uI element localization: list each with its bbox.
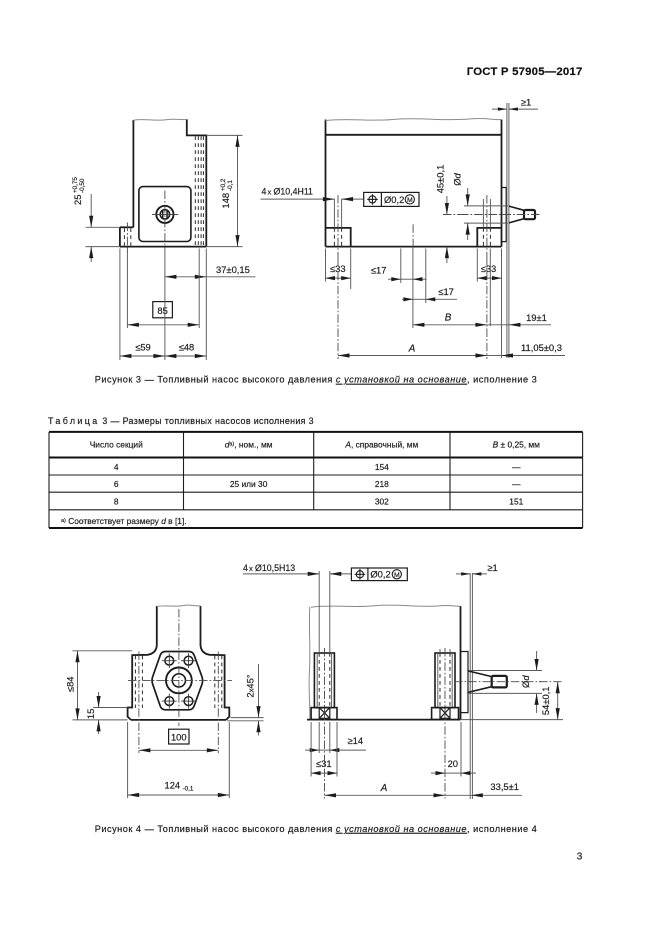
svg-text:218: 218 xyxy=(375,479,389,489)
svg-text:Таблица 3 — Размеры топливных: Таблица 3 — Размеры топливных насосов ис… xyxy=(48,416,314,426)
svg-text:154: 154 xyxy=(375,462,389,472)
svg-text:Рисунок 3 — Топливный насос вы: Рисунок 3 — Топливный насос высокого дав… xyxy=(95,375,538,385)
svg-text:302: 302 xyxy=(375,497,389,507)
svg-text:+0,2: +0,2 xyxy=(220,178,227,191)
svg-text:85: 85 xyxy=(157,305,167,316)
svg-text:А: А xyxy=(408,344,416,355)
svg-text:19±1: 19±1 xyxy=(526,312,547,323)
svg-text:В ± 0,25, мм: В ± 0,25, мм xyxy=(493,440,541,450)
svg-text:148: 148 xyxy=(220,193,231,209)
svg-text:≥14: ≥14 xyxy=(348,735,364,746)
svg-text:—: — xyxy=(512,462,521,472)
svg-text:20: 20 xyxy=(448,758,458,769)
svg-text:45±0,1: 45±0,1 xyxy=(434,165,445,194)
svg-text:15: 15 xyxy=(85,709,96,719)
svg-text:6: 6 xyxy=(114,479,119,489)
svg-text:37±0,15: 37±0,15 xyxy=(216,264,250,275)
svg-text:В: В xyxy=(445,313,452,324)
svg-text:151: 151 xyxy=(509,497,523,507)
svg-text:Рисунок 4 — Топливный насос вы: Рисунок 4 — Топливный насос высокого дав… xyxy=(95,824,538,834)
svg-text:4: 4 xyxy=(243,563,248,573)
svg-text:а) Соответствует размеру d в [: а) Соответствует размеру d в [1]. xyxy=(61,516,187,526)
svg-text:2x45°: 2x45° xyxy=(245,674,256,697)
svg-text:4: 4 xyxy=(114,462,119,472)
svg-text:100: 100 xyxy=(171,731,187,742)
svg-text:11,05±0,3: 11,05±0,3 xyxy=(521,342,562,353)
svg-text:124: 124 xyxy=(165,779,181,790)
svg-text:≤84: ≤84 xyxy=(65,677,76,693)
svg-text:33,5±1: 33,5±1 xyxy=(490,781,519,792)
svg-text:≤48: ≤48 xyxy=(179,341,195,352)
svg-text:≤33: ≤33 xyxy=(481,263,497,274)
svg-text:≤17: ≤17 xyxy=(438,286,454,297)
svg-text:≤31: ≤31 xyxy=(316,758,332,769)
svg-text:dа), ном., мм: dа), ном., мм xyxy=(225,440,273,450)
svg-text:Ø10,4H11: Ø10,4H11 xyxy=(274,187,314,197)
svg-text:M: M xyxy=(394,572,400,579)
svg-text:≤59: ≤59 xyxy=(135,341,151,352)
svg-text:Число секций: Число секций xyxy=(90,440,143,450)
svg-text:x: x xyxy=(268,188,272,197)
svg-text:x: x xyxy=(249,564,253,573)
svg-text:Ø0,2: Ø0,2 xyxy=(384,194,404,205)
svg-text:А, справочный, мм: А, справочный, мм xyxy=(344,440,418,450)
svg-text:А: А xyxy=(380,783,388,794)
svg-text:25 или 30: 25 или 30 xyxy=(230,479,268,489)
svg-text:25: 25 xyxy=(72,195,83,205)
svg-text:M: M xyxy=(407,197,413,204)
svg-text:3: 3 xyxy=(577,852,583,863)
svg-text:-0,1: -0,1 xyxy=(227,180,234,191)
svg-text:+0,75: +0,75 xyxy=(72,177,79,193)
svg-text:≥1: ≥1 xyxy=(487,562,497,573)
svg-text:—: — xyxy=(512,479,521,489)
svg-text:≥1: ≥1 xyxy=(521,97,531,108)
svg-text:-0,1: -0,1 xyxy=(183,786,194,793)
svg-text:-0,50: -0,50 xyxy=(79,178,86,193)
svg-text:4: 4 xyxy=(262,187,267,197)
svg-text:Ø0,2: Ø0,2 xyxy=(370,569,390,580)
svg-text:Ød: Ød xyxy=(451,172,462,185)
svg-text:Ød: Ød xyxy=(520,675,531,688)
svg-text:Ø10,5H13: Ø10,5H13 xyxy=(255,563,295,573)
svg-text:8: 8 xyxy=(114,497,119,507)
svg-text:≤17: ≤17 xyxy=(371,265,387,276)
svg-text:ГОСТ Р 57905—2017: ГОСТ Р 57905—2017 xyxy=(467,66,583,78)
svg-text:54±0,1: 54±0,1 xyxy=(540,686,551,715)
